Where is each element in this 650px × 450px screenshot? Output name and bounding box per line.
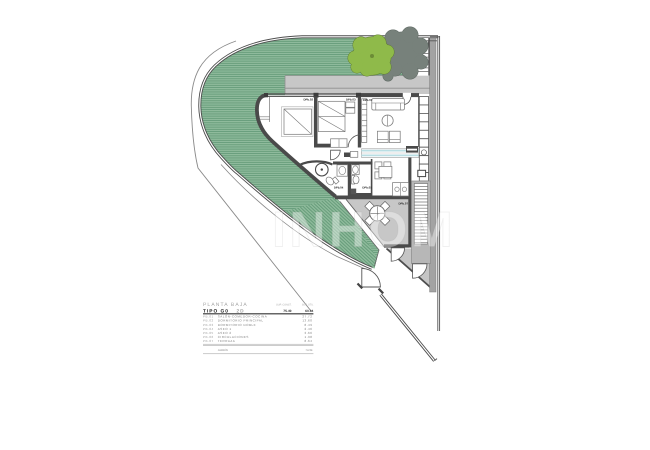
- svg-text:PB.07: PB.07: [203, 339, 214, 343]
- svg-text:75.49: 75.49: [283, 309, 291, 313]
- svg-text:DPb.01: DPb.01: [363, 98, 373, 102]
- svg-text:8.64: 8.64: [305, 339, 313, 343]
- svg-text:60.94: 60.94: [305, 309, 313, 313]
- svg-text:DPb.04: DPb.04: [334, 185, 344, 189]
- svg-text:INHOM: INHOM: [272, 202, 456, 258]
- svg-text:SUP. ÚTIL: SUP. ÚTIL: [302, 303, 314, 307]
- svg-text:SUP. CONST.: SUP. CONST.: [276, 304, 292, 307]
- svg-text:DPb.03: DPb.03: [346, 97, 356, 101]
- svg-text:DPb.05: DPb.05: [362, 185, 372, 189]
- svg-text:DPb.02: DPb.02: [304, 97, 314, 101]
- svg-text:74.34: 74.34: [305, 348, 312, 352]
- svg-text:PLANTA BAJA: PLANTA BAJA: [203, 302, 248, 308]
- svg-text:TERRAZA: TERRAZA: [218, 339, 236, 343]
- svg-text:JARDÍN: JARDÍN: [218, 348, 228, 352]
